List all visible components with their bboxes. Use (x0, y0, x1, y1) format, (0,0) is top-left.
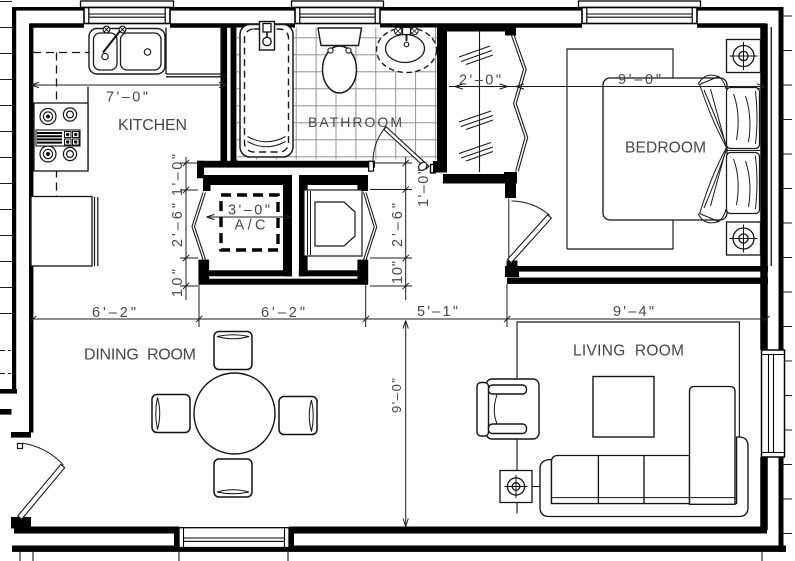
svg-text:BATHROOM: BATHROOM (308, 114, 404, 130)
svg-text:9'–0": 9'–0" (389, 376, 404, 413)
svg-text:2'–6": 2'–6" (390, 201, 406, 247)
svg-text:6'–2": 6'–2" (92, 305, 138, 321)
svg-text:A/C: A/C (235, 218, 268, 234)
svg-text:5'–1": 5'–1" (417, 304, 460, 320)
svg-text:DINING ROOM: DINING ROOM (84, 347, 198, 364)
svg-text:7'–0": 7'–0" (106, 90, 150, 106)
svg-text:3'–0": 3'–0" (228, 203, 272, 219)
svg-text:2'–6": 2'–6" (170, 201, 186, 247)
svg-text:10": 10" (170, 267, 186, 297)
svg-text:6'–2": 6'–2" (261, 305, 307, 321)
svg-text:BEDROOM: BEDROOM (625, 140, 708, 157)
svg-text:1'–0": 1'–0" (170, 152, 186, 196)
svg-text:1'–0": 1'–0" (416, 167, 432, 207)
svg-text:10": 10" (390, 259, 406, 284)
svg-text:KITCHEN: KITCHEN (118, 117, 189, 134)
svg-text:9'–4": 9'–4" (613, 304, 656, 320)
svg-text:LIVING ROOM: LIVING ROOM (573, 343, 686, 360)
svg-text:9'–0": 9'–0" (618, 72, 663, 88)
